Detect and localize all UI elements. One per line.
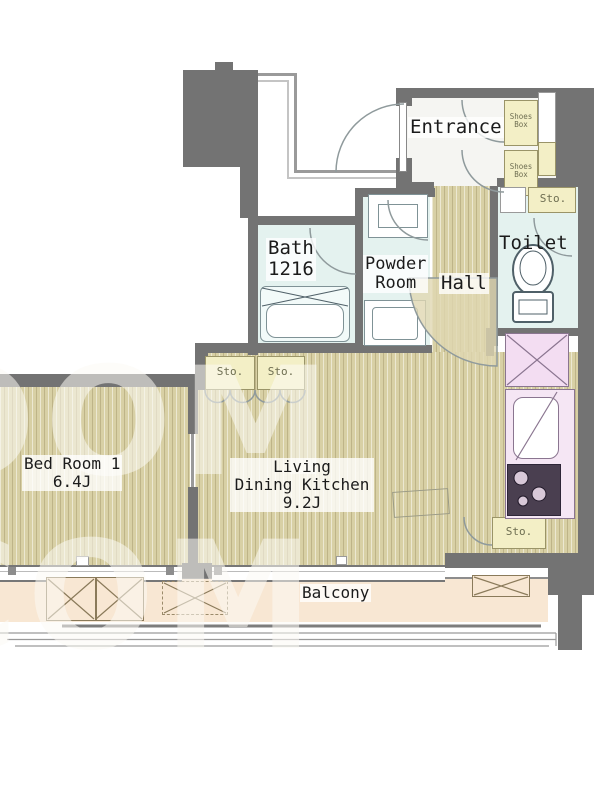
partition-opening xyxy=(191,434,194,487)
wall-segment xyxy=(490,186,498,346)
closet-label-1: Sto. xyxy=(216,366,244,377)
pillar-notch xyxy=(215,62,233,71)
wall-segment xyxy=(404,88,560,98)
wall-segment xyxy=(248,216,362,225)
wall-segment xyxy=(195,343,362,353)
washbasin-bowl xyxy=(378,204,418,228)
entrance-label: Entrance xyxy=(408,117,504,138)
utility-box xyxy=(500,187,526,213)
bathtub-inner xyxy=(266,304,344,338)
evacuation-hatch xyxy=(162,581,228,615)
ac-unit-3 xyxy=(472,575,530,597)
entrance-door-arc xyxy=(336,104,404,172)
ldk-window xyxy=(212,565,445,582)
balcony-label: Balcony xyxy=(300,584,371,602)
low-table xyxy=(392,488,450,518)
stove xyxy=(507,464,561,516)
washing-machine xyxy=(372,307,418,340)
powder-room-label: PowderRoom xyxy=(363,255,428,293)
balcony-railing xyxy=(0,633,556,646)
kitchen-sink xyxy=(513,397,559,459)
pillar xyxy=(183,70,258,167)
toilet-label: Toilet xyxy=(497,233,570,254)
sill-box xyxy=(336,556,347,565)
utility-box xyxy=(538,142,556,176)
window-pier xyxy=(182,563,212,578)
hall-floor xyxy=(432,186,490,352)
hall-label: Hall xyxy=(439,273,489,294)
shoes-box-label: ShoesBox xyxy=(506,163,536,178)
walkway-line-inner xyxy=(287,80,289,178)
wall-segment xyxy=(558,592,582,650)
partition-wall xyxy=(188,487,198,567)
bedroom-label: Bed Room 16.4J xyxy=(22,455,122,491)
walkway-line xyxy=(256,73,296,76)
bedroom-top-wall xyxy=(0,374,195,387)
bath-label: Bath1216 xyxy=(266,238,316,281)
sill-box xyxy=(76,556,89,566)
toilet-storage-label: Sto. xyxy=(538,193,568,204)
shoes-box-label: ShoesBox xyxy=(506,113,536,128)
wall-segment xyxy=(486,328,494,356)
wall-segment xyxy=(240,167,258,218)
kitchen-storage-label: Sto. xyxy=(505,526,533,537)
wall-segment xyxy=(556,88,594,180)
wall-segment xyxy=(355,196,363,346)
wall-segment xyxy=(362,345,432,353)
refrigerator-space xyxy=(505,333,569,387)
walkway-line xyxy=(294,73,297,172)
walkway-line-inner xyxy=(287,177,399,179)
shoes-box-1: ShoesBox xyxy=(504,100,538,146)
closet-label-2: Sto. xyxy=(267,366,295,377)
floor-plan: ShoesBox ShoesBox xyxy=(0,0,600,800)
wall-segment xyxy=(578,178,594,560)
ac-unit-2 xyxy=(96,577,144,621)
ldk-label: LivingDining Kitchen9.2J xyxy=(230,458,374,512)
walkway-line-inner xyxy=(256,80,288,82)
entrance-door-leaf xyxy=(399,102,407,172)
wall-segment xyxy=(248,216,258,355)
ac-unit-1 xyxy=(46,577,96,621)
walkway-line xyxy=(294,170,404,173)
wall-segment xyxy=(548,555,594,595)
partition-wall xyxy=(188,384,198,434)
